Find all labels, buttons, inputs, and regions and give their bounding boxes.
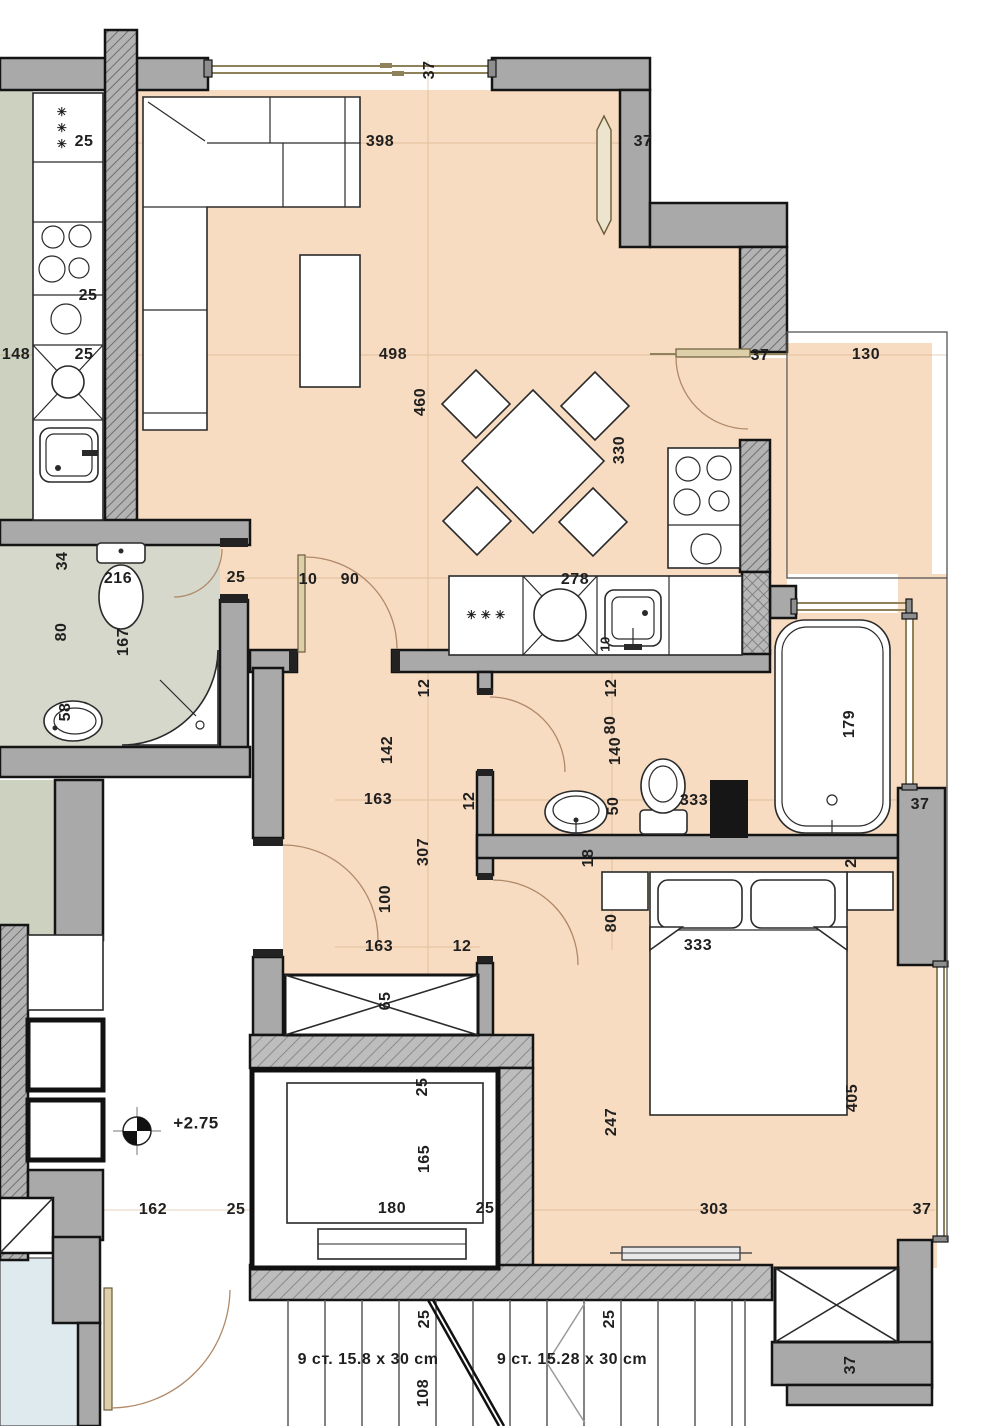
living-room-radiator <box>597 116 611 234</box>
washing-machine <box>534 589 586 641</box>
dim-label: 278 <box>561 572 589 588</box>
dim-label: 9 ст. 15.28 x 30 cm <box>497 1352 647 1368</box>
neighbor-room-floor <box>0 780 55 940</box>
dining-set <box>442 370 629 556</box>
dim-label: 216 <box>104 571 132 587</box>
dim-label: 12 <box>462 792 478 811</box>
wall-bath-bedroom-divider <box>477 835 898 858</box>
dim-label: 180 <box>378 1201 406 1217</box>
dim-label: 37 <box>422 61 438 80</box>
shaft-box-diagonal <box>0 1198 53 1253</box>
balcony-floor <box>788 343 932 574</box>
dim-label: 100 <box>378 885 394 913</box>
elevator <box>252 1070 498 1268</box>
wall-right-upper <box>620 90 650 247</box>
dim-label: 303 <box>700 1202 728 1218</box>
neighbor-kitchen-floor <box>0 90 33 520</box>
dim-label: 179 <box>842 710 858 738</box>
floor-plan: 3725398372514825498371304603303421625109… <box>0 0 1000 1426</box>
wall-step-vertical <box>740 247 787 352</box>
double-bed <box>650 872 847 1115</box>
coffee-table <box>300 255 360 387</box>
dim-label: 80 <box>54 623 70 642</box>
dim-label: 90 <box>341 572 360 588</box>
dim-label: 163 <box>365 939 393 955</box>
dim-label: 10 <box>299 572 318 588</box>
slab-band-hall <box>250 1035 533 1068</box>
balcony-strip-floor <box>898 574 947 613</box>
faucet <box>624 644 642 650</box>
neighbor-entrance-door <box>104 1288 230 1410</box>
dim-label: 25 <box>75 347 94 363</box>
dim-label: 80 <box>603 716 619 735</box>
dim-label: 18 <box>581 849 597 868</box>
living-room-window <box>204 60 496 77</box>
dim-label: 130 <box>852 347 880 363</box>
wall-hall-east-mid <box>477 772 493 875</box>
dim-label: 37 <box>843 1356 859 1375</box>
dim-label: 167 <box>116 628 132 656</box>
dim-label: 25 <box>75 134 94 150</box>
shaft-box-2 <box>28 1020 103 1090</box>
pillow <box>658 880 742 928</box>
dim-label: ✳ <box>57 138 68 150</box>
dim-label: 25 <box>79 288 98 304</box>
dim-label: 333 <box>680 793 708 809</box>
dim-label: 307 <box>416 838 432 866</box>
wall-neighbor-room-right <box>55 780 103 940</box>
wall-bedroom-west <box>498 1068 533 1268</box>
dim-label: 25 <box>417 1310 433 1329</box>
wall-neighbor-bath-right <box>220 600 248 750</box>
wall-neighbor-bath-bottom <box>0 747 250 777</box>
dim-label: 25 <box>476 1201 495 1217</box>
dim-label: 34 <box>55 552 71 571</box>
dim-label: 140 <box>608 737 624 765</box>
dim-label: 37 <box>911 797 930 813</box>
wall-top-right <box>492 58 650 90</box>
shaft-box-1 <box>28 935 103 1010</box>
wall-top-mid <box>135 58 208 90</box>
wall-kitchen-east <box>740 440 770 572</box>
dim-label: 163 <box>364 792 392 808</box>
door-threshold-floor <box>297 650 392 672</box>
dim-label: 25 <box>227 1202 246 1218</box>
dim-label: 165 <box>417 1145 433 1173</box>
dim-label: 247 <box>604 1108 620 1136</box>
dim-label: 148 <box>2 347 30 363</box>
wall-stair-left-1 <box>53 1237 100 1323</box>
dim-label: 12 <box>604 679 620 698</box>
stair-break-line <box>428 1300 499 1426</box>
dim-label: 25 <box>602 1310 618 1329</box>
dim-label: 80 <box>604 914 620 933</box>
dim-label: +2.75 <box>173 1115 219 1132</box>
wall-neighbor-bath-top <box>0 520 250 545</box>
dim-label: 65 <box>378 992 394 1011</box>
dim-label: 142 <box>380 736 396 764</box>
bedroom-radiator <box>610 1247 752 1260</box>
dim-label: 162 <box>139 1202 167 1218</box>
dim-label: 12 <box>417 679 433 698</box>
stair-break-line <box>433 1300 504 1426</box>
wall-top-left <box>0 58 110 90</box>
dim-label: 37 <box>634 134 653 150</box>
neighbor-kitchen-counter <box>33 93 103 520</box>
dim-label: 25 <box>227 570 246 586</box>
nightstand <box>847 872 893 910</box>
dim-label: 2 <box>844 858 860 867</box>
dim-label: 10 <box>599 636 612 651</box>
dim-label: 50 <box>606 797 622 816</box>
bathtub <box>775 620 890 833</box>
faucet <box>82 450 98 456</box>
dim-label: 498 <box>379 347 407 363</box>
window-strip-floor <box>913 613 947 788</box>
dim-label: 37 <box>913 1202 932 1218</box>
dim-label: 460 <box>413 388 429 416</box>
dim-label: 58 <box>58 703 74 722</box>
party-wall <box>105 30 137 545</box>
wall-kitchen-east-shaft <box>742 572 770 654</box>
level-marker <box>113 1107 161 1155</box>
dim-label: ✳ <box>57 106 68 118</box>
nightstand <box>602 872 648 910</box>
dim-label: 405 <box>845 1084 861 1112</box>
dim-label: 25 <box>415 1078 431 1097</box>
dim-label: 108 <box>416 1379 432 1407</box>
wall-east-mid <box>898 788 945 965</box>
wall-bottom-right-step <box>787 1385 932 1405</box>
wall-stair-left-2 <box>78 1323 100 1426</box>
shaft-box-3 <box>28 1100 103 1160</box>
dim-label: 9 ст. 15.8 x 30 cm <box>298 1352 439 1368</box>
dim-label: 398 <box>366 134 394 150</box>
wall-bath-black-column <box>710 780 748 838</box>
wall-hall-west-upper <box>253 668 283 838</box>
wall-hall-west-lower <box>253 957 283 1035</box>
dim-label: 330 <box>612 436 628 464</box>
dim-label: ✳ <box>57 122 68 134</box>
bottom-duct-shaft <box>775 1268 898 1342</box>
kitchen-counter-upper <box>668 448 740 568</box>
pillow <box>751 880 835 928</box>
bathroom-top-window <box>791 599 912 614</box>
washing-machine <box>52 366 84 398</box>
wall-step-horizontal <box>650 203 787 247</box>
dim-label: 37 <box>751 348 770 364</box>
dim-label: 12 <box>453 939 472 955</box>
dim-label: 333 <box>684 938 712 954</box>
dim-label: ✳ ✳ ✳ <box>466 609 505 621</box>
